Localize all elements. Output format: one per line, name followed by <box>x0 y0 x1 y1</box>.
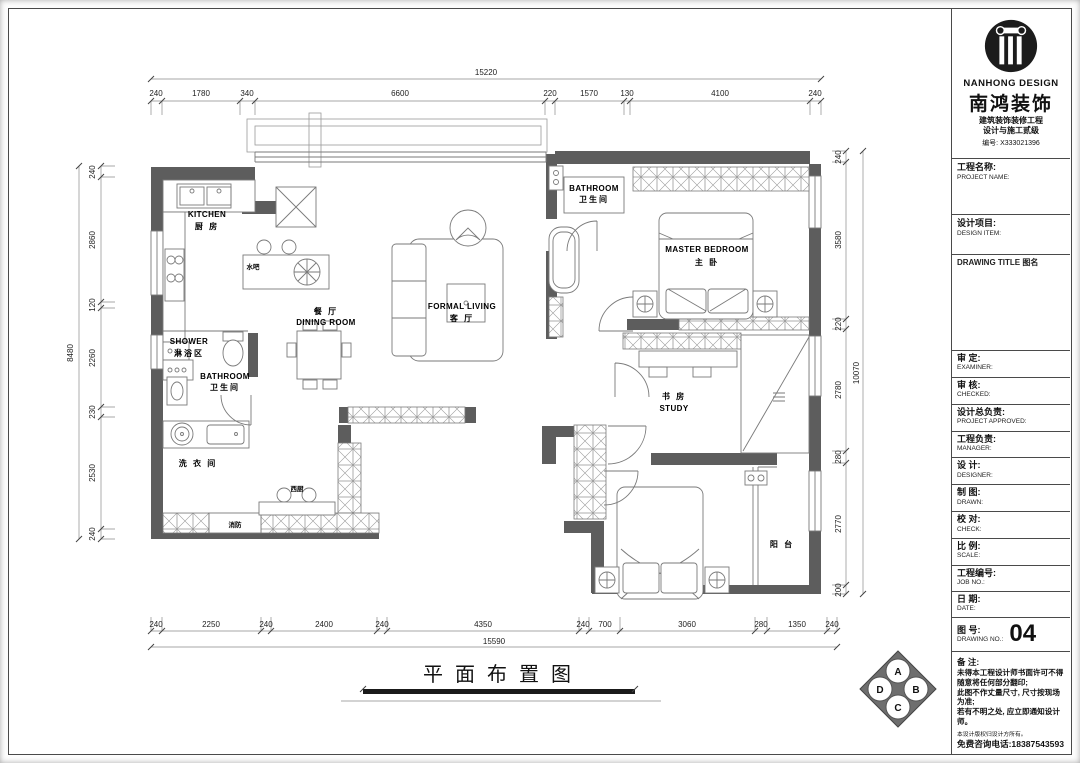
remarks-section: 备 注: 未得本工程设计师书面许可不得 随意将任何部分翻印; 此图不作丈量尺寸,… <box>952 651 1070 754</box>
balcony-fixtures <box>745 467 777 585</box>
dim: 1570 <box>580 89 598 98</box>
remarks-fine-print: 本设计版权归设计方所有。 <box>957 729 1065 738</box>
dim: 340 <box>240 89 254 98</box>
dim: 240 <box>149 89 163 98</box>
brand-cn-name: 南鸿装饰 <box>969 89 1053 116</box>
laundry-fixtures <box>163 421 249 448</box>
label-fire: 消防 <box>229 520 243 529</box>
label-bath-bottom-en: BATHROOM <box>200 372 250 381</box>
field-design-item: 设计项目: DESIGN ITEM: <box>952 214 1070 254</box>
dim: 240 <box>88 165 97 179</box>
dim: 4100 <box>711 89 729 98</box>
label-shower-en: SHOWER <box>170 337 208 346</box>
field-job-no: 工程编号: JOB NO.: <box>952 565 1070 591</box>
label-study-cn: 书 房 <box>662 391 686 401</box>
dim: 2860 <box>88 231 97 249</box>
drawing-number-value: 04 <box>1009 622 1036 646</box>
brand-serial: 编号: X333021396 <box>982 138 1040 148</box>
dim: 6600 <box>391 89 409 98</box>
label-bath-bottom-cn: 卫生间 <box>210 382 240 392</box>
nanhong-logo-icon <box>982 17 1040 75</box>
dim-right-total: 10070 <box>852 361 861 384</box>
dim: 240 <box>834 150 843 164</box>
label-kitchen-en: KITCHEN <box>188 210 226 219</box>
field-examiner: 审 定: EXAMINER: <box>952 350 1070 377</box>
compass-a: A <box>894 667 901 678</box>
brand-cert-line1: 建筑装饰装修工程 <box>979 116 1043 126</box>
bay-window-outline <box>247 113 547 167</box>
dim: 2400 <box>315 620 333 629</box>
label-balcony: 阳 台 <box>770 539 794 549</box>
field-project-approved: 设计总负责: PROJECT APPROVED: <box>952 404 1070 431</box>
field-drawing-title: DRAWING TITLE 图名 <box>952 254 1070 350</box>
dim: 4350 <box>474 620 492 629</box>
brand-cert-line2: 设计与施工贰级 <box>983 126 1039 136</box>
dim: 280 <box>754 620 768 629</box>
dim: 130 <box>620 89 634 98</box>
label-bath-top-en: BATHROOM <box>569 184 619 193</box>
sheet-frame: 15220 240 1780 340 6600 220 1570 130 410… <box>8 8 1072 755</box>
title-underline <box>363 689 635 694</box>
dim: 1780 <box>192 89 210 98</box>
floor-plan-svg: 15220 240 1780 340 6600 220 1570 130 410… <box>9 9 951 752</box>
field-date: 日 期: DATE: <box>952 591 1070 617</box>
field-manager: 工程负责: MANAGER: <box>952 431 1070 458</box>
label-kitchen-cn: 厨 房 <box>195 221 219 231</box>
dim: 240 <box>149 620 163 629</box>
dim: 3580 <box>834 231 843 249</box>
dim-bottom-total: 15590 <box>483 637 506 646</box>
dim: 240 <box>375 620 389 629</box>
label-dining-cn: 餐 厅 <box>313 306 338 316</box>
sheet-title-group: 平面布置图 <box>341 663 661 701</box>
label-bath-top-cn: 卫生间 <box>579 194 609 204</box>
consult-phone: 免费咨询电话:18387543593 <box>957 738 1065 750</box>
dim: 240 <box>259 620 273 629</box>
dim: 2530 <box>88 464 97 482</box>
dim: 220 <box>543 89 557 98</box>
dim: 240 <box>825 620 839 629</box>
bedroom2-set <box>595 487 729 599</box>
label-dining-en: DINING ROOM <box>296 318 356 327</box>
title-block: NANHONG DESIGN 南鸿装饰 建筑装饰装修工程 设计与施工贰级 编号:… <box>951 9 1070 754</box>
dim: 240 <box>88 527 97 541</box>
dim: 230 <box>88 405 97 419</box>
label-master-cn: 主 卧 <box>695 257 719 267</box>
dim: 240 <box>808 89 822 98</box>
compass-b: B <box>912 685 919 696</box>
brand-en-name: NANHONG DESIGN <box>963 78 1058 89</box>
dim-left-total: 8480 <box>66 344 75 362</box>
floor-plan-area: 15220 240 1780 340 6600 220 1570 130 410… <box>9 9 951 752</box>
dim: 2770 <box>834 515 843 533</box>
label-study-en: STUDY <box>659 404 688 413</box>
label-shower-cn: 淋浴区 <box>174 348 204 358</box>
field-scale: 比 例: SCALE: <box>952 538 1070 565</box>
label-bar: 水吧 <box>247 262 261 271</box>
label-west-kitchen: 西厨 <box>291 484 305 493</box>
field-check: 校 对: CHECK: <box>952 511 1070 538</box>
dim: 220 <box>834 317 843 331</box>
dim: 280 <box>834 450 843 464</box>
label-living-en: FORMAL LIVING <box>428 302 496 311</box>
compass-d: D <box>876 685 883 696</box>
dim: 2250 <box>202 620 220 629</box>
field-project-name: 工程名称: PROJECT NAME: <box>952 158 1070 214</box>
dim: 120 <box>88 298 97 312</box>
brand-header: NANHONG DESIGN 南鸿装饰 建筑装饰装修工程 设计与施工贰级 编号:… <box>952 9 1070 158</box>
field-checked: 审 核: CHECKED: <box>952 377 1070 404</box>
compass-c: C <box>894 703 901 714</box>
dining-set <box>287 321 351 389</box>
label-living-cn: 客 厅 <box>449 313 474 323</box>
living-set <box>392 210 503 361</box>
shaft <box>276 187 316 227</box>
dim: 2780 <box>834 381 843 399</box>
label-laundry: 洗 衣 间 <box>179 458 217 468</box>
dim: 700 <box>598 620 612 629</box>
dim: 200 <box>834 583 843 597</box>
label-master-en: MASTER BEDROOM <box>665 245 748 254</box>
field-designer: 设 计: DESIGNER: <box>952 457 1070 484</box>
field-drawing-no: 图 号: DRAWING NO.: 04 <box>952 617 1070 651</box>
dim: 1350 <box>788 620 806 629</box>
dim: 2260 <box>88 349 97 367</box>
drawing-sheet: 15220 240 1780 340 6600 220 1570 130 410… <box>0 0 1080 763</box>
dim: 240 <box>576 620 590 629</box>
dim-top-total: 15220 <box>475 68 498 77</box>
sheet-title: 平面布置图 <box>423 663 583 686</box>
compass: A B C D <box>860 651 936 727</box>
field-drawn: 制 图: DRAWN: <box>952 484 1070 511</box>
dim: 3060 <box>678 620 696 629</box>
